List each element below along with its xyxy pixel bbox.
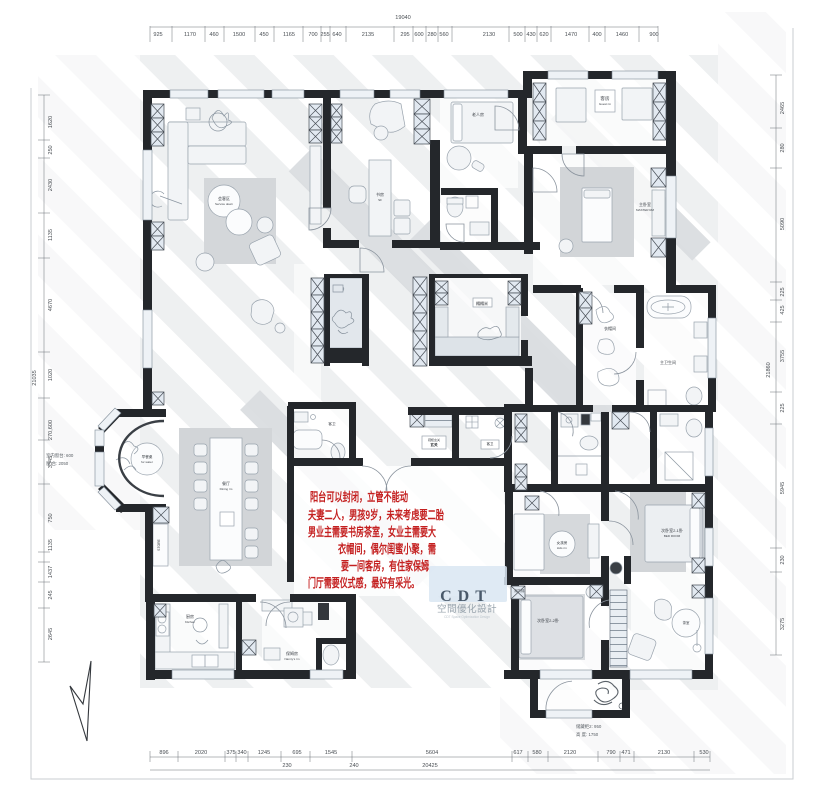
svg-text:1437: 1437	[48, 566, 54, 578]
svg-text:530: 530	[699, 750, 708, 756]
svg-text:for water: for water	[141, 460, 153, 464]
svg-text:Service down: Service down	[215, 202, 233, 206]
svg-text:客卫: 客卫	[328, 421, 336, 426]
svg-text:225: 225	[780, 287, 786, 296]
svg-text:255: 255	[320, 32, 329, 38]
svg-text:250: 250	[48, 145, 54, 154]
svg-text:230: 230	[780, 555, 786, 564]
svg-text:280: 280	[780, 143, 786, 152]
svg-text:门厅需要仪式感，最好有采光。: 门厅需要仪式感，最好有采光。	[308, 575, 419, 590]
svg-text:主卫生间: 主卫生间	[660, 359, 676, 365]
svg-text:640: 640	[332, 32, 341, 38]
svg-text:Guest rm: Guest rm	[599, 102, 612, 106]
svg-text:衣帽间，偶尔闺蜜小聚，需: 衣帽间，偶尔闺蜜小聚，需	[338, 541, 436, 556]
svg-text:厨房: 厨房	[186, 613, 194, 619]
svg-text:1135: 1135	[48, 229, 54, 241]
svg-text:衣帽间: 衣帽间	[604, 325, 616, 331]
svg-text:SF: SF	[378, 198, 382, 202]
svg-text:1500: 1500	[233, 32, 245, 38]
svg-text:2130: 2130	[658, 750, 670, 756]
svg-text:Nanny's rm: Nanny's rm	[284, 657, 300, 661]
svg-text:3345: 3345	[48, 456, 54, 468]
svg-text:20425: 20425	[422, 763, 438, 769]
svg-text:书房: 书房	[376, 191, 384, 197]
svg-text:240: 240	[349, 763, 358, 769]
svg-text:560: 560	[439, 32, 448, 38]
svg-text:储藏柜2: 950: 储藏柜2: 950	[576, 723, 602, 730]
svg-text:玄关: 玄关	[430, 442, 438, 447]
svg-text:1545: 1545	[325, 750, 337, 756]
svg-text:340: 340	[237, 750, 246, 756]
svg-text:270,600: 270,600	[48, 420, 54, 440]
svg-text:空間優化設計: 空間優化設計	[437, 603, 497, 615]
svg-text:CDT Space Optimization Design: CDT Space Optimization Design	[444, 615, 490, 619]
svg-text:500: 500	[513, 32, 522, 38]
svg-text:早餐桌: 早餐桌	[142, 454, 153, 459]
svg-text:保姆房: 保姆房	[286, 650, 298, 656]
svg-text:1620: 1620	[48, 116, 54, 128]
svg-text:2465: 2465	[780, 102, 786, 114]
svg-text:消防梯: 消防梯	[514, 588, 525, 593]
svg-text:1245: 1245	[258, 750, 270, 756]
svg-text:5090: 5090	[780, 218, 786, 230]
svg-text:695: 695	[292, 750, 301, 756]
svg-text:阳台可以封闭，立管不能动: 阳台可以封闭，立管不能动	[310, 489, 408, 504]
svg-text:617: 617	[513, 750, 522, 756]
svg-text:3275: 3275	[780, 618, 786, 630]
svg-text:280: 280	[427, 32, 436, 38]
svg-text:鞋柜玄关: 鞋柜玄关	[428, 437, 440, 442]
svg-text:STORE: STORE	[157, 538, 161, 550]
svg-text:Dining rm: Dining rm	[220, 487, 233, 491]
svg-text:375: 375	[226, 750, 235, 756]
svg-text:女孩房: 女孩房	[557, 540, 568, 545]
svg-text:男业主需要书房茶室，女业主需要大: 男业主需要书房茶室，女业主需要大	[308, 524, 436, 539]
svg-text:榻榻米: 榻榻米	[476, 300, 488, 306]
svg-text:790: 790	[606, 750, 615, 756]
svg-text:5945: 5945	[780, 482, 786, 494]
svg-text:夫妻二人，男孩9岁，未来考虑要二胎: 夫妻二人，男孩9岁，未来考虑要二胎	[307, 507, 444, 522]
svg-text:700: 700	[308, 32, 317, 38]
svg-text:1170: 1170	[184, 32, 196, 38]
svg-text:1135: 1135	[48, 539, 54, 551]
svg-text:430: 430	[526, 32, 535, 38]
svg-text:900: 900	[649, 32, 658, 38]
svg-text:次卧室2-1卧: 次卧室2-1卧	[661, 527, 683, 533]
svg-text:1020: 1020	[48, 369, 54, 381]
svg-text:BED ROOM: BED ROOM	[664, 534, 681, 538]
svg-text:620: 620	[539, 32, 548, 38]
svg-text:1460: 1460	[616, 32, 628, 38]
svg-text:主卧室: 主卧室	[639, 201, 651, 207]
svg-text:19040: 19040	[395, 15, 411, 21]
svg-text:CDT: CDT	[440, 588, 492, 605]
svg-text:要一间客房，有住家保姆: 要一间客房，有住家保姆	[341, 558, 429, 573]
svg-text:2120: 2120	[564, 750, 576, 756]
svg-text:MASTER RM: MASTER RM	[636, 208, 655, 212]
svg-text:茶室: 茶室	[683, 620, 690, 625]
svg-text:2020: 2020	[195, 750, 207, 756]
svg-text:925: 925	[153, 32, 162, 38]
svg-text:21860: 21860	[766, 362, 772, 378]
svg-text:高 度: 1750: 高 度: 1750	[576, 731, 599, 738]
svg-text:kids rm: kids rm	[557, 546, 567, 550]
svg-text:750: 750	[48, 513, 54, 522]
svg-text:896: 896	[159, 750, 168, 756]
svg-text:次卧室2-2卧: 次卧室2-2卧	[537, 617, 559, 623]
svg-text:295: 295	[400, 32, 409, 38]
svg-text:2430: 2430	[48, 179, 54, 191]
svg-text:老人房: 老人房	[472, 111, 484, 117]
svg-text:5604: 5604	[426, 750, 438, 756]
svg-text:客卫: 客卫	[487, 441, 494, 446]
svg-text:471: 471	[621, 750, 630, 756]
svg-text:580: 580	[532, 750, 541, 756]
svg-text:460: 460	[209, 32, 218, 38]
svg-text:21035: 21035	[32, 370, 38, 386]
svg-text:600: 600	[414, 32, 423, 38]
svg-text:225: 225	[780, 403, 786, 412]
svg-text:会客区: 会客区	[218, 195, 230, 201]
svg-text:450: 450	[259, 32, 268, 38]
svg-text:1165: 1165	[283, 32, 295, 38]
svg-text:230: 230	[282, 763, 291, 769]
svg-text:2645: 2645	[48, 628, 54, 640]
svg-text:1470: 1470	[565, 32, 577, 38]
svg-text:餐厅: 餐厅	[222, 480, 230, 486]
svg-text:2130: 2130	[483, 32, 495, 38]
svg-text:4670: 4670	[48, 299, 54, 311]
svg-text:245: 245	[48, 590, 54, 599]
svg-text:3755: 3755	[780, 350, 786, 362]
svg-text:客房: 客房	[600, 95, 610, 102]
svg-text:Kitchen: Kitchen	[185, 620, 195, 624]
svg-text:425: 425	[780, 305, 786, 314]
svg-text:2135: 2135	[362, 32, 374, 38]
svg-text:400: 400	[592, 32, 601, 38]
